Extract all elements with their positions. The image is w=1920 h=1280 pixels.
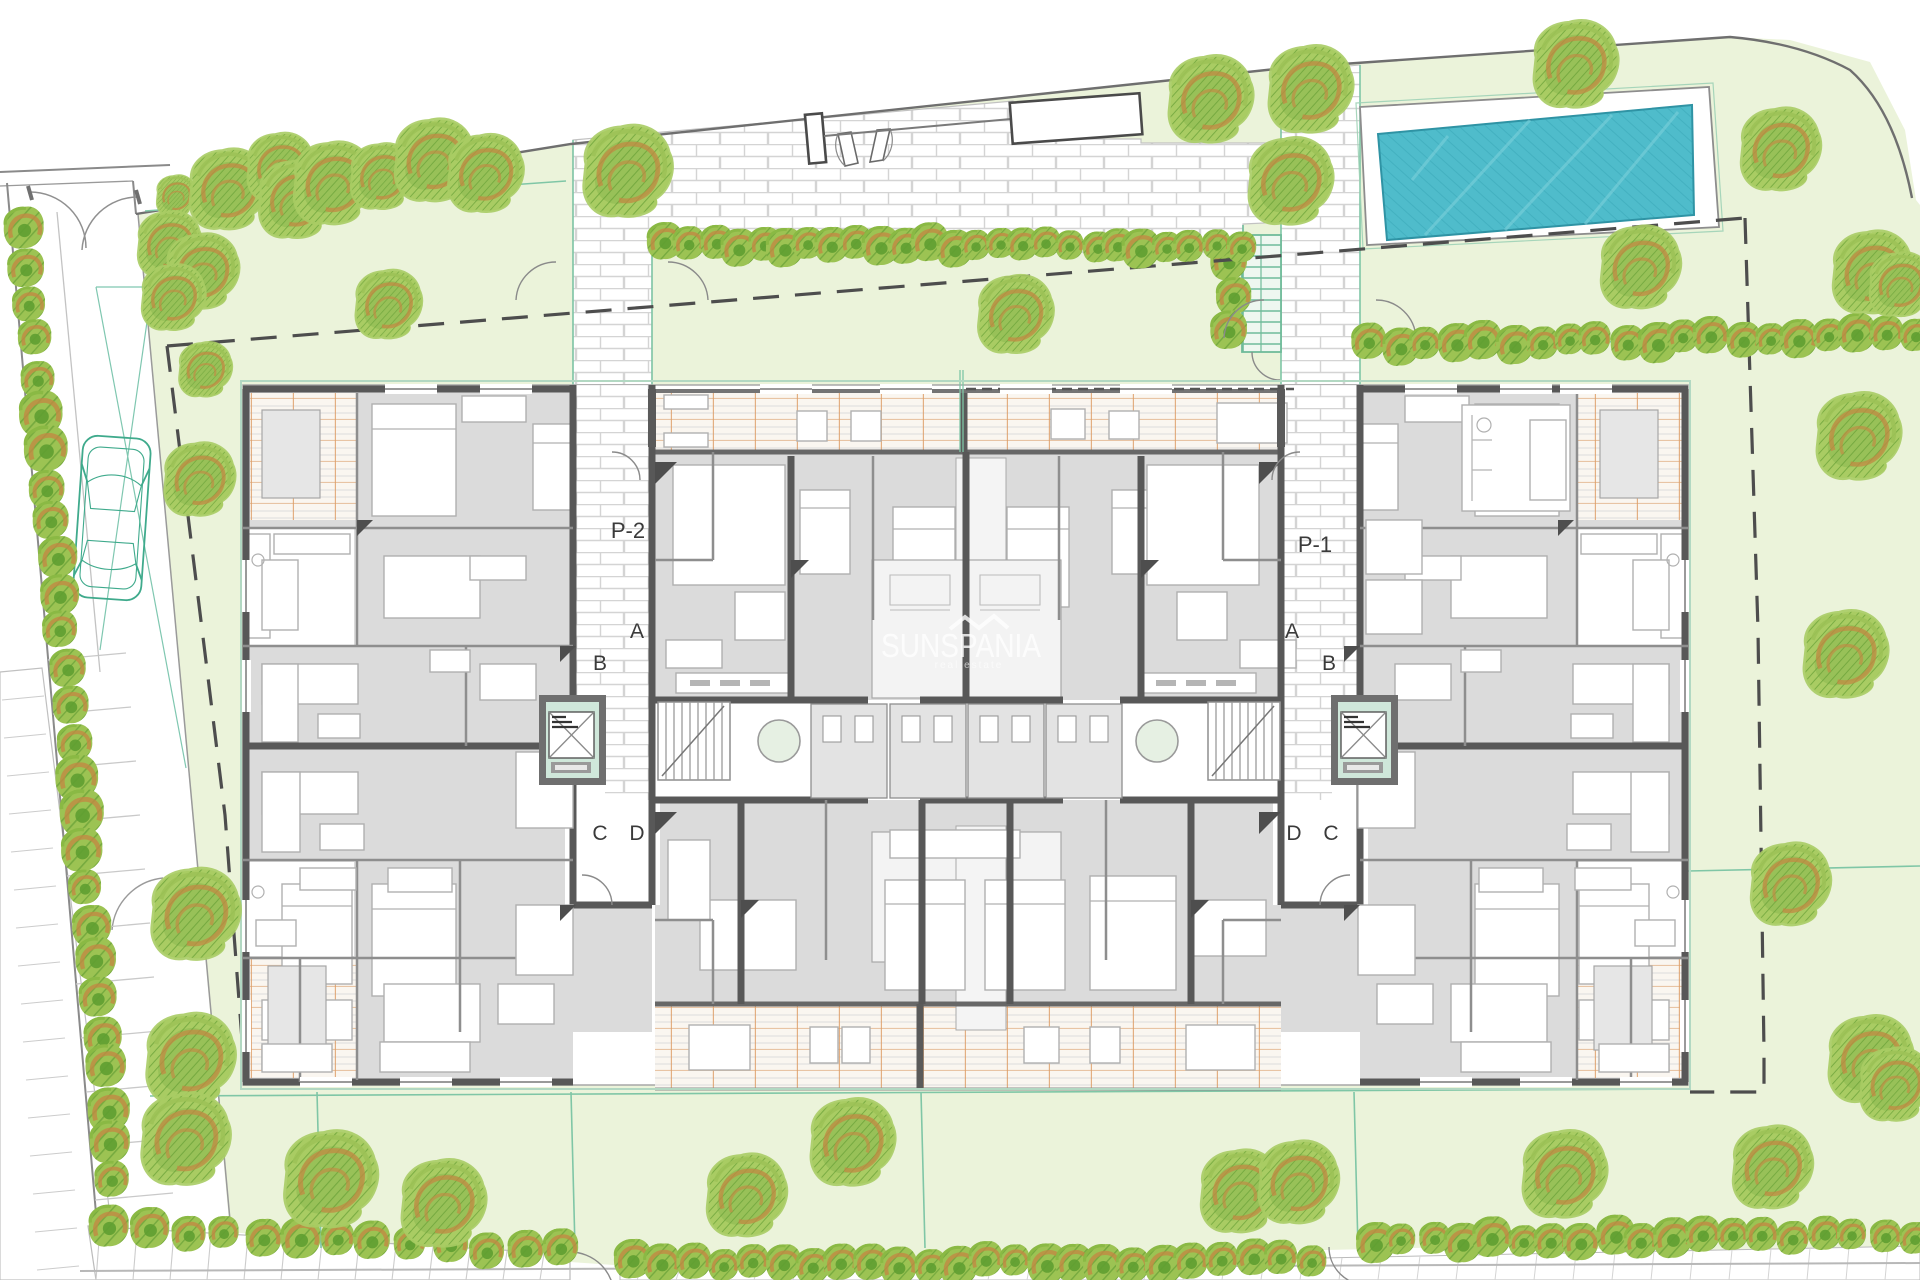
svg-text:B: B	[1322, 652, 1336, 675]
svg-text:D: D	[1286, 822, 1301, 845]
svg-text:C: C	[592, 822, 607, 845]
svg-text:A: A	[1285, 620, 1299, 643]
svg-text:B: B	[593, 652, 607, 675]
svg-text:P-2: P-2	[611, 518, 645, 543]
svg-text:D: D	[629, 822, 644, 845]
svg-text:A: A	[630, 620, 644, 643]
svg-text:real estate: real estate	[935, 660, 1004, 671]
svg-text:C: C	[1323, 822, 1338, 845]
svg-text:SUNSPANIA: SUNSPANIA	[881, 627, 1041, 664]
svg-text:P-1: P-1	[1298, 532, 1332, 557]
